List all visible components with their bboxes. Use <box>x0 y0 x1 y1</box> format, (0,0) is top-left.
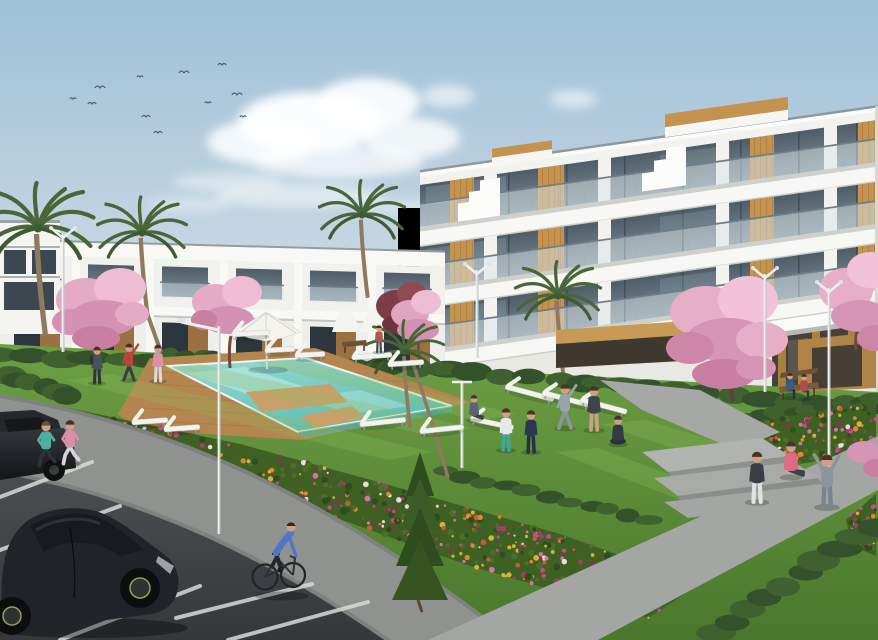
flower <box>578 560 583 565</box>
bed-leaf <box>511 553 518 560</box>
bed-leaf <box>561 539 565 543</box>
flower <box>335 481 338 484</box>
bed-leaf <box>337 483 342 488</box>
person-limb <box>753 482 754 502</box>
person-limb <box>510 420 511 432</box>
property-render-image <box>0 0 878 640</box>
lamp-head <box>487 262 491 266</box>
bed-leaf <box>847 433 851 437</box>
flower <box>530 581 534 585</box>
flower <box>785 423 790 428</box>
flower <box>778 438 781 441</box>
bed-leaf <box>528 550 534 556</box>
flower <box>498 515 501 518</box>
person-limb <box>528 435 529 452</box>
bed-leaf <box>252 459 258 465</box>
left-wing-rail <box>0 246 60 248</box>
person-limb <box>823 486 824 507</box>
flower <box>551 550 555 554</box>
cloud <box>253 146 423 178</box>
flower <box>870 405 872 407</box>
bed-leaf <box>853 438 857 442</box>
flower <box>362 517 364 519</box>
flower <box>281 464 284 467</box>
railing-post <box>584 181 585 204</box>
flower <box>486 557 490 561</box>
flower <box>852 513 857 518</box>
bed-leaf <box>473 529 477 533</box>
railing-post <box>532 188 533 211</box>
person-limb <box>501 420 502 432</box>
flower <box>838 407 842 411</box>
flower <box>774 436 778 440</box>
railing-post <box>454 199 455 222</box>
hedge-bush <box>451 362 492 381</box>
flower <box>572 548 575 551</box>
flower <box>843 439 845 441</box>
flower <box>367 525 373 531</box>
bed-leaf <box>779 416 785 422</box>
person-limb <box>99 369 100 383</box>
railing-post <box>506 192 507 215</box>
flower <box>481 564 484 567</box>
bed-leaf <box>833 410 837 414</box>
bed-leaf <box>318 467 323 472</box>
flower <box>525 535 528 538</box>
lamp-head <box>463 262 467 266</box>
bed-leaf <box>447 529 454 536</box>
flower <box>367 521 370 524</box>
flower <box>277 457 281 461</box>
flower <box>478 527 481 530</box>
person-limb <box>830 486 831 507</box>
flower <box>276 481 279 484</box>
person-limb <box>535 422 536 434</box>
bed-leaf <box>852 407 856 411</box>
flower <box>403 532 406 535</box>
flower <box>377 481 381 485</box>
flower <box>801 438 805 442</box>
flower <box>326 474 329 477</box>
lamp-head <box>839 280 843 284</box>
bed-leaf <box>553 563 560 570</box>
cloud <box>422 85 474 107</box>
flower <box>448 547 452 551</box>
flower <box>315 466 318 469</box>
person-limb <box>589 399 590 411</box>
flower <box>815 440 818 443</box>
person-limb <box>477 405 478 414</box>
railing-post <box>428 203 429 226</box>
flower <box>810 416 813 419</box>
bed-leaf <box>199 437 205 443</box>
flower <box>299 473 301 475</box>
bed-leaf <box>819 411 823 415</box>
bed-leaf <box>859 405 863 409</box>
railing-post <box>870 140 871 163</box>
flower <box>333 501 338 506</box>
person-limb <box>613 427 614 438</box>
person-limb <box>622 427 623 438</box>
flower <box>313 482 316 485</box>
flower <box>386 492 390 496</box>
flower <box>507 572 512 577</box>
flower <box>470 544 474 548</box>
person-limb <box>503 433 504 450</box>
person-limb <box>760 482 761 502</box>
flower <box>465 555 470 560</box>
flower <box>512 544 516 548</box>
flower <box>451 535 454 538</box>
railing-post <box>766 155 767 178</box>
flower <box>559 553 562 556</box>
flower <box>542 561 546 565</box>
bed-leaf <box>340 507 347 514</box>
railing-post <box>870 202 871 225</box>
flower <box>822 439 824 441</box>
person-shadow <box>496 448 516 453</box>
bed-leaf <box>843 409 847 413</box>
flower <box>853 426 858 431</box>
bed-leaf <box>468 517 474 523</box>
railing-post <box>532 312 533 335</box>
railing-post <box>636 173 637 196</box>
flower <box>332 496 335 499</box>
flower <box>385 508 389 512</box>
flower <box>474 565 479 570</box>
flower <box>337 498 340 501</box>
flower <box>453 511 455 513</box>
flower <box>536 542 538 544</box>
railing-post <box>740 158 741 181</box>
patio-recess-right <box>812 344 862 389</box>
person-limb <box>751 466 752 480</box>
flower <box>521 543 523 545</box>
railing-post <box>610 177 611 200</box>
bed-leaf <box>292 473 297 478</box>
hedge-bush <box>634 515 663 525</box>
hedge-bush <box>52 387 81 405</box>
bed-leaf <box>386 527 391 532</box>
person-limb <box>526 422 527 434</box>
railing-post <box>688 166 689 189</box>
flower <box>807 429 811 433</box>
flower <box>208 445 212 449</box>
bed-leaf <box>863 430 866 433</box>
flower <box>604 550 606 552</box>
car-rim-rear <box>3 607 21 625</box>
flower <box>797 452 802 457</box>
lamp-head <box>815 280 819 284</box>
person-limb <box>598 399 599 411</box>
lamp-head <box>177 318 185 323</box>
railing-post <box>584 243 585 266</box>
person-limb <box>533 435 534 452</box>
bed-leaf <box>490 549 496 555</box>
flower <box>839 443 843 447</box>
bed-leaf <box>804 448 809 453</box>
person-limb <box>100 357 101 367</box>
bed-leaf <box>367 493 370 496</box>
lamp-pole-shade <box>765 274 766 392</box>
railing-post <box>714 224 715 247</box>
bed-leaf <box>394 518 401 525</box>
person-limb <box>161 355 162 365</box>
flower <box>530 560 534 564</box>
bed-leaf <box>372 498 378 504</box>
flower <box>363 481 369 487</box>
railing-post <box>636 297 637 320</box>
flower <box>540 568 545 573</box>
left-wing-window <box>4 250 26 274</box>
flower <box>859 506 863 510</box>
person-limb <box>376 333 377 341</box>
flower <box>342 482 346 486</box>
railing-post <box>792 213 793 236</box>
flower <box>379 493 382 496</box>
railing-post <box>766 217 767 240</box>
flower <box>347 503 349 505</box>
flower <box>539 552 543 556</box>
bed-leaf <box>274 475 280 481</box>
flower <box>435 537 438 540</box>
flower <box>817 429 820 432</box>
flower <box>803 460 805 462</box>
person-limb <box>382 333 383 341</box>
bed-leaf <box>281 473 286 478</box>
flower <box>521 523 524 526</box>
bed-leaf <box>786 418 790 422</box>
lamp-head <box>775 266 779 270</box>
flower <box>313 473 319 479</box>
person-limb <box>160 367 161 381</box>
person-shadow <box>373 351 386 355</box>
bed-leaf <box>308 461 312 465</box>
bed-leaf <box>499 544 503 548</box>
person-shadow <box>521 450 541 455</box>
railing-post <box>506 254 507 277</box>
flower <box>658 609 661 612</box>
railing-post <box>844 144 845 167</box>
person-shadow <box>88 381 106 386</box>
hedge-bush <box>511 484 540 496</box>
bed-leaf <box>378 484 386 492</box>
flower <box>395 527 397 529</box>
cloud <box>173 173 283 191</box>
flower <box>392 510 396 514</box>
flower <box>496 549 499 552</box>
person-limb <box>154 355 155 365</box>
railing-post <box>688 228 689 251</box>
railing-post <box>506 316 507 339</box>
flower <box>459 544 462 547</box>
flower <box>562 549 566 553</box>
parasol-shadow <box>248 367 288 374</box>
hedge-bush <box>557 498 582 508</box>
person-limb <box>508 433 509 450</box>
flower <box>562 559 568 565</box>
person-shadow <box>149 379 167 384</box>
bed-leaf <box>867 412 871 416</box>
flower <box>853 416 857 420</box>
flower <box>812 434 816 438</box>
lamp-pole-shade <box>829 288 830 472</box>
person-limb <box>785 455 786 468</box>
person-limb <box>795 455 796 468</box>
flower <box>247 459 251 463</box>
flower <box>507 545 511 549</box>
flower <box>860 438 863 441</box>
flower <box>397 519 399 521</box>
bed-leaf <box>382 531 388 537</box>
flower <box>564 536 566 538</box>
person-limb <box>801 382 802 390</box>
bed-leaf <box>500 552 506 558</box>
bed-leaf <box>848 520 853 525</box>
person-limb <box>596 413 597 430</box>
flower <box>837 421 841 425</box>
railing-post <box>454 323 455 346</box>
flower <box>770 423 774 427</box>
flower <box>477 515 482 520</box>
person-shadow <box>745 499 769 506</box>
flower <box>526 531 529 534</box>
bed-leaf <box>589 544 593 548</box>
flower <box>856 407 859 410</box>
flower <box>396 497 401 502</box>
railing-post <box>636 235 637 258</box>
cloud <box>549 90 597 108</box>
flower <box>504 575 507 578</box>
flower <box>805 418 810 423</box>
flower <box>442 526 446 530</box>
flower <box>382 520 385 523</box>
railing-post <box>480 257 481 280</box>
railing-post <box>714 162 715 185</box>
railing-post <box>792 151 793 174</box>
flower <box>515 563 520 568</box>
lamp-head <box>49 226 53 230</box>
bed-leaf <box>397 537 401 541</box>
lamp-pole-shade <box>219 326 220 534</box>
railing-post <box>610 239 611 262</box>
person-limb <box>94 369 95 383</box>
flower <box>231 454 233 456</box>
bed-leaf <box>464 533 468 537</box>
bed-leaf <box>820 417 826 423</box>
flower <box>819 423 823 427</box>
left-wing-rail <box>0 276 60 278</box>
flower <box>799 423 803 427</box>
flower <box>467 516 469 518</box>
hedge-bush <box>596 503 619 515</box>
flower <box>329 485 331 487</box>
flower <box>798 442 802 446</box>
flower <box>481 539 487 545</box>
flower <box>496 526 501 531</box>
bed-leaf <box>345 490 350 495</box>
bed-leaf <box>525 573 532 580</box>
bed-leaf <box>382 501 387 506</box>
bed-leaf <box>834 444 838 448</box>
railing-post <box>558 246 559 269</box>
flower <box>546 534 551 539</box>
flower <box>390 521 393 524</box>
flower <box>497 535 500 538</box>
bed-leaf <box>535 578 539 582</box>
flower <box>647 616 649 618</box>
flower <box>840 428 844 432</box>
bed-leaf <box>482 555 487 560</box>
bed-leaf <box>543 577 547 581</box>
flower <box>373 505 376 508</box>
lamp-pole-shade <box>63 234 64 352</box>
person-limb <box>380 341 381 352</box>
flower <box>227 443 230 446</box>
flower <box>802 435 805 438</box>
flower <box>523 578 525 580</box>
flower <box>453 519 456 522</box>
flower <box>304 492 308 496</box>
hedge-bush <box>470 477 497 489</box>
flower <box>515 541 517 543</box>
flower <box>845 424 850 429</box>
flower <box>200 443 205 448</box>
flower <box>871 514 876 519</box>
lamp-head <box>751 266 755 270</box>
flower <box>451 554 454 557</box>
person-limb <box>762 466 763 480</box>
person-limb <box>807 382 808 390</box>
flower <box>440 543 443 546</box>
railing-post <box>792 275 793 298</box>
flower <box>513 577 516 580</box>
cyclist-shadow <box>255 592 309 601</box>
person-limb <box>377 341 378 352</box>
railing-post <box>818 147 819 170</box>
bed-leaf <box>874 508 877 511</box>
flower <box>523 545 526 548</box>
flower <box>473 523 477 527</box>
bed-leaf <box>323 482 328 487</box>
bed-leaf <box>783 437 788 442</box>
flower <box>262 474 265 477</box>
flower <box>558 540 560 542</box>
flower <box>518 549 521 552</box>
left-wing-window <box>4 282 54 310</box>
flower <box>591 553 595 557</box>
flower <box>455 516 458 519</box>
flower <box>471 510 475 514</box>
flower <box>459 552 462 555</box>
flower <box>436 505 439 508</box>
person-limb <box>591 413 592 430</box>
flower <box>803 423 807 427</box>
flower <box>513 534 515 536</box>
flower <box>584 542 586 544</box>
flower <box>539 557 543 561</box>
flower <box>327 472 329 474</box>
person-limb <box>470 405 471 414</box>
person-limb <box>793 381 794 389</box>
bed-leaf <box>351 505 356 510</box>
railing-post <box>818 209 819 232</box>
person-limb <box>155 367 156 381</box>
townhouse-railing <box>308 286 358 302</box>
person-shadow <box>466 418 482 422</box>
flower <box>365 496 371 502</box>
railing-post <box>662 294 663 317</box>
